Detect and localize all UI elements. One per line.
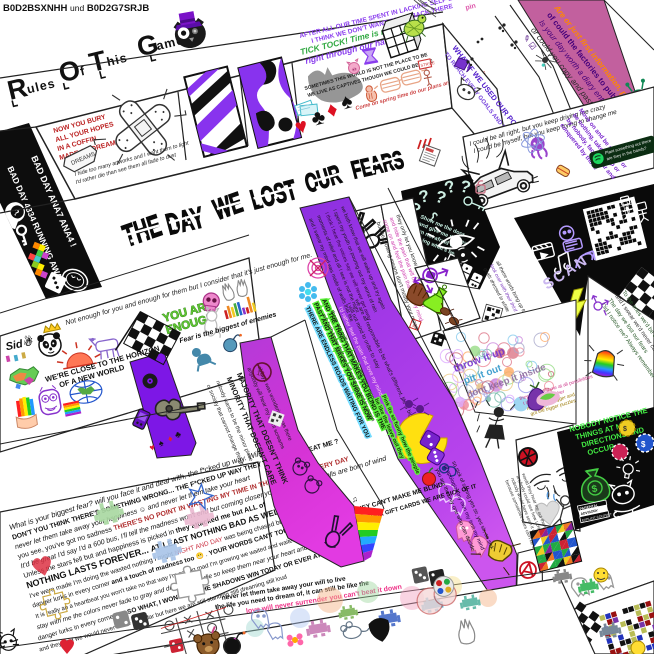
svg-text:B0D2BSXNHH und B0D2G7SRJB: B0D2BSXNHH und B0D2G7SRJB <box>3 3 149 14</box>
svg-text:$: $ <box>641 440 646 449</box>
svg-text:$: $ <box>623 426 627 433</box>
